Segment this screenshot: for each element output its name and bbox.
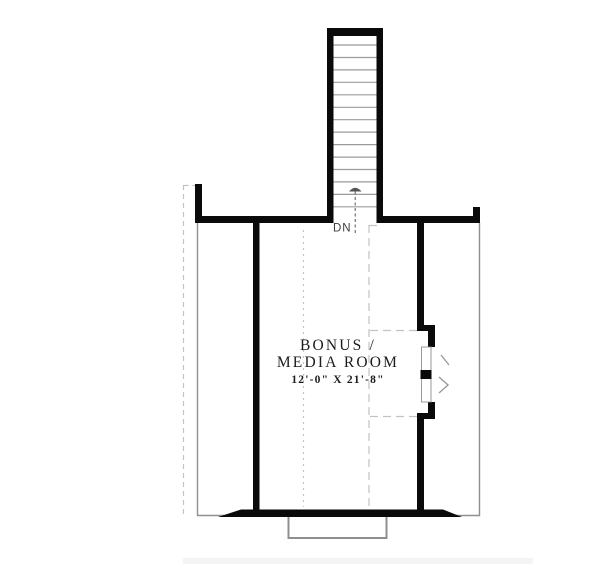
window-wall-upper [428,331,435,347]
stair-right-wall [377,28,384,223]
room-name-line2: MEDIA ROOM [277,354,399,371]
floor-plan-page: DN BONUS / M [0,0,600,564]
window-jog-bottom [417,413,435,419]
top-wall-left-segment [195,216,333,223]
room-name-line1: BONUS / [300,337,376,354]
floor-plan-canvas: DN BONUS / M [0,0,600,564]
window-wall-lower [428,402,435,413]
stair-left-wall [327,28,334,223]
window-jog-top [417,325,435,331]
footer-strip [183,558,533,564]
chimney-box [289,516,387,538]
room-right-wall-upper [417,223,424,325]
room-dimensions: 12'-0" X 21'-8" [291,374,384,386]
stair-top-wall [327,28,383,36]
plan-background [0,0,600,564]
room-right-wall-lower [417,419,424,513]
stair-down-label: DN [333,223,352,235]
room-left-wall [253,223,260,513]
top-wall-right-segment [377,216,480,223]
window-mullion [421,370,432,379]
